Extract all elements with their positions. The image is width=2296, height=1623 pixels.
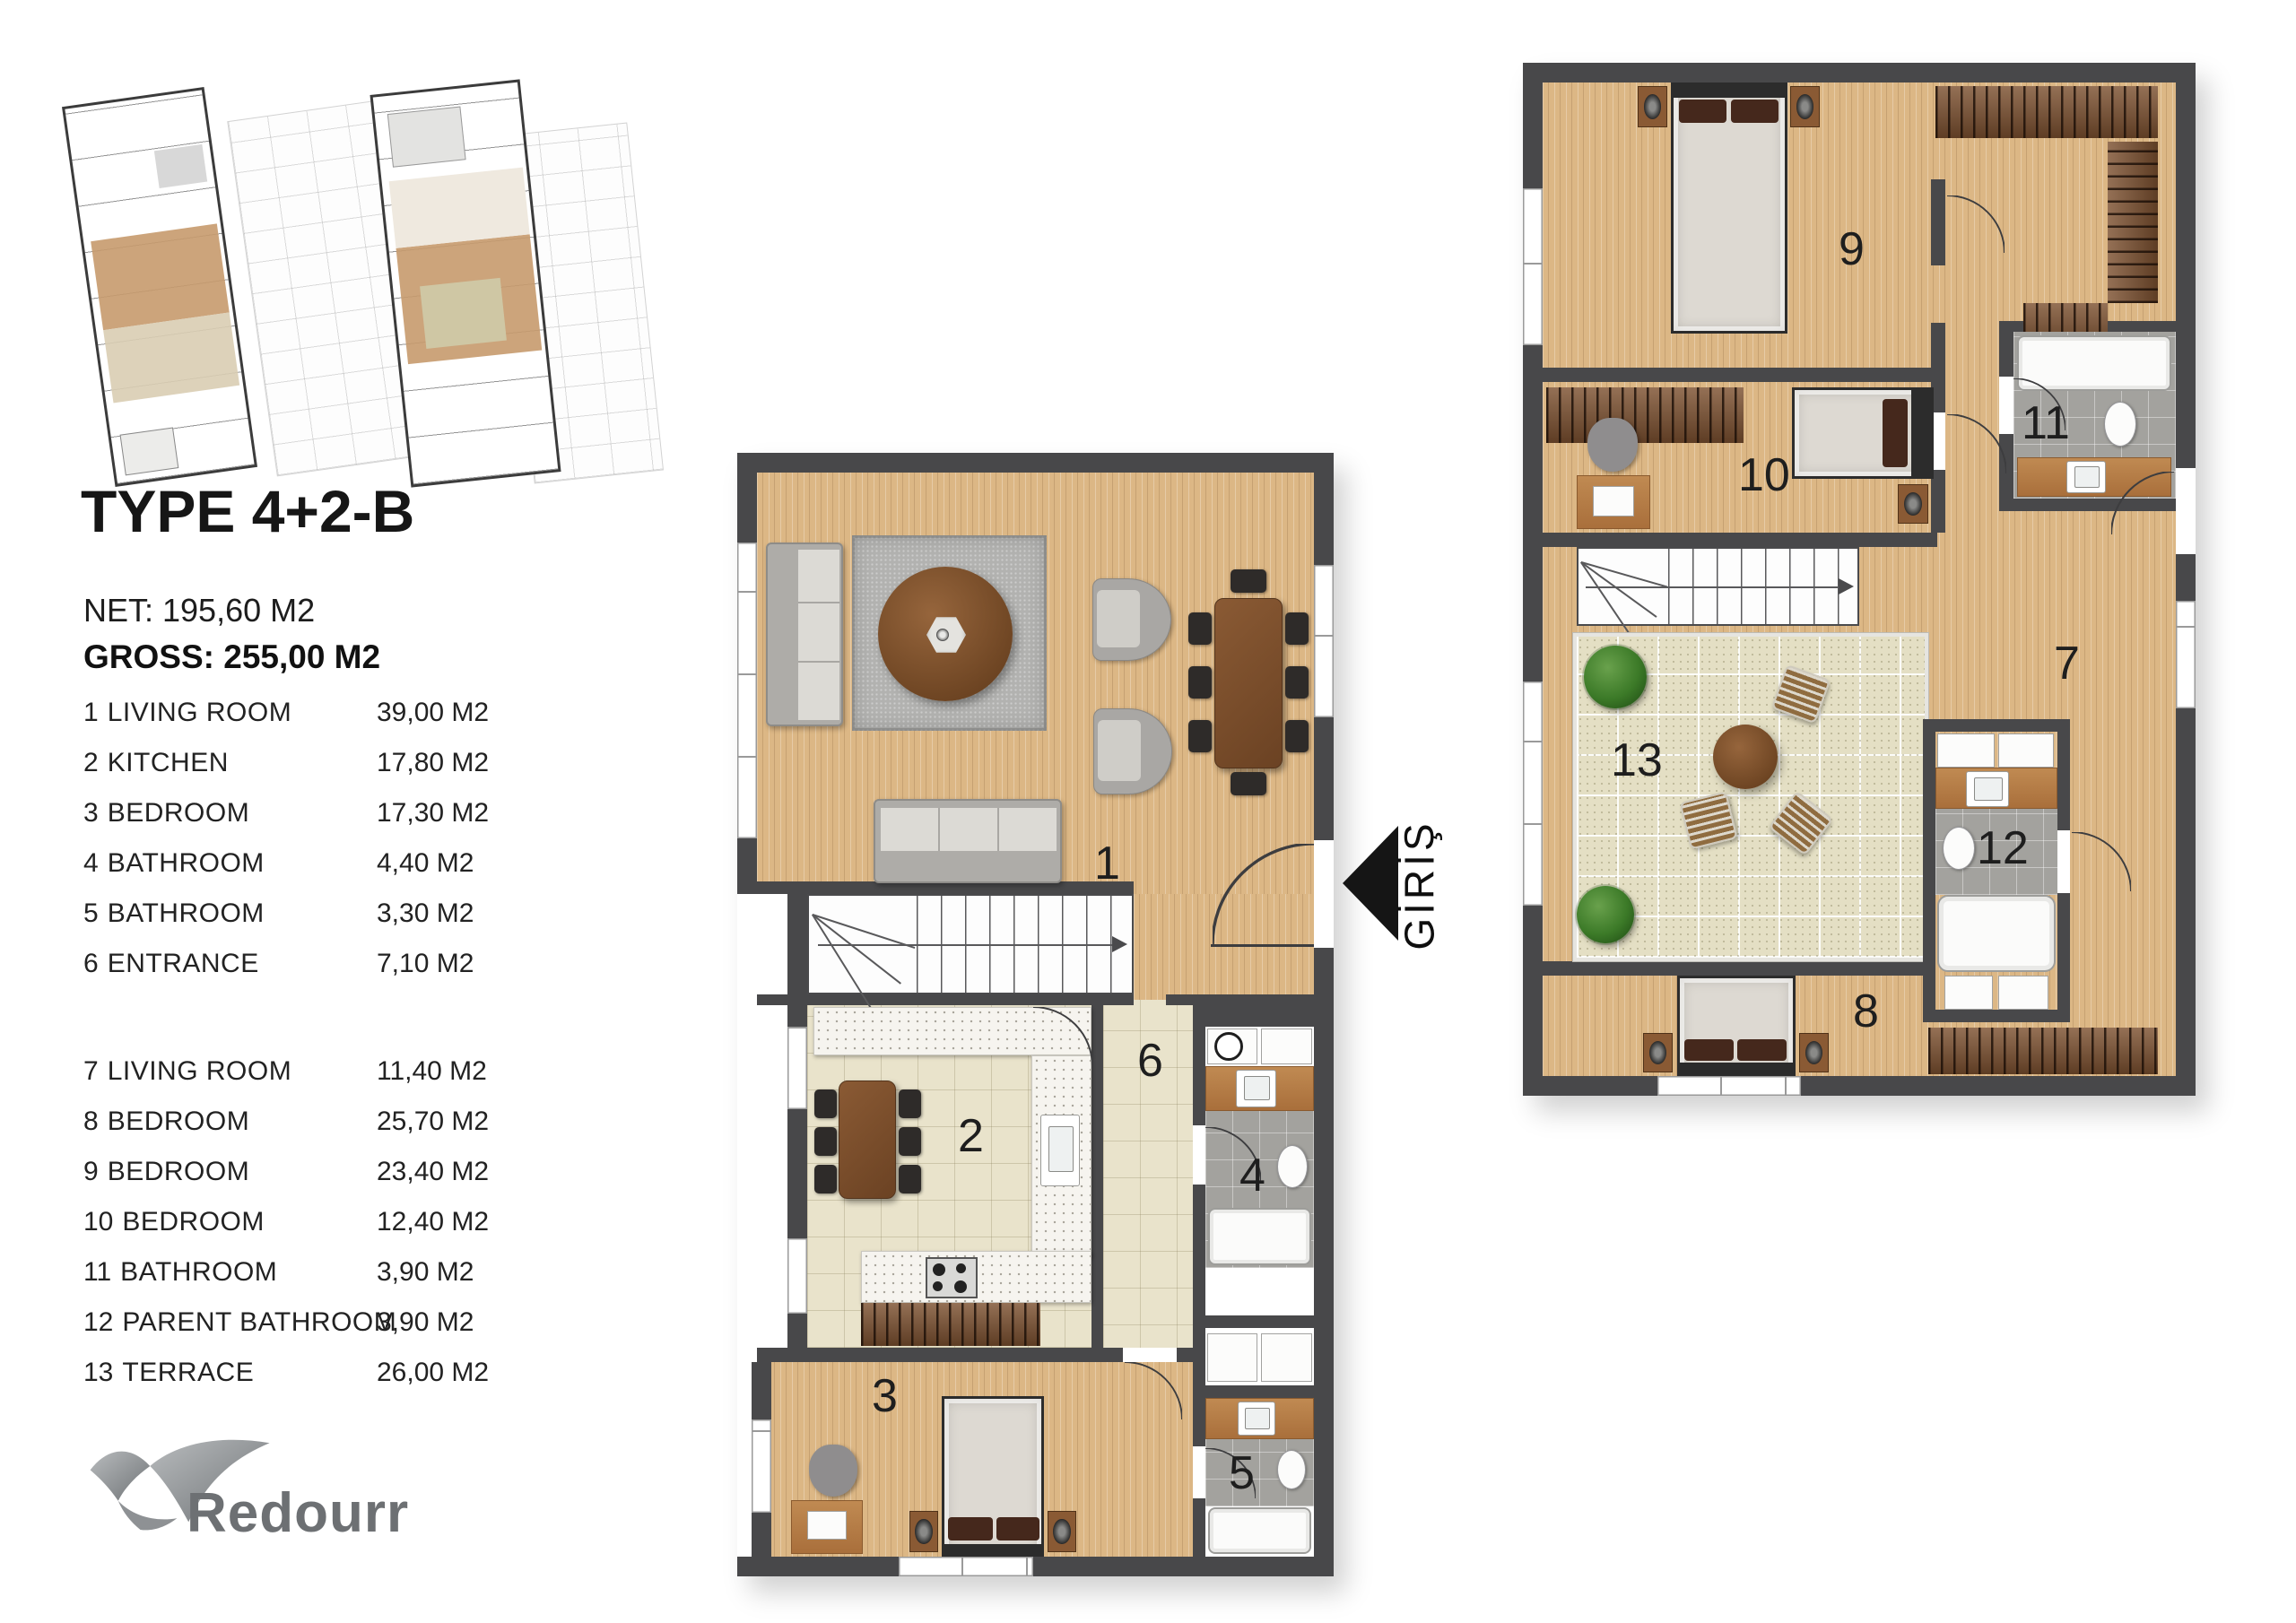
room-label-9: 9	[1839, 222, 1865, 276]
nightstand	[1643, 1033, 1673, 1072]
room-area: 7,10 M2	[377, 949, 474, 979]
door-opening	[2176, 468, 2196, 554]
pillow	[996, 1517, 1039, 1541]
door-arc	[1033, 1007, 1092, 1066]
thumbnail-terrace-block	[420, 278, 507, 349]
nightstand	[1898, 484, 1928, 524]
stair-steps	[813, 914, 916, 949]
page-title: TYPE 4+2-B	[81, 477, 414, 545]
gross-area-label: GROSS: 255,00 M2	[83, 638, 380, 676]
dining-chair	[814, 1165, 837, 1193]
bathroom-sink	[1238, 1402, 1275, 1436]
dining-chair	[1188, 666, 1212, 699]
terrace-table	[1713, 725, 1778, 789]
stair-steps	[1581, 561, 1657, 617]
room-label-8: 8	[1853, 985, 1879, 1038]
double-bed	[1677, 976, 1796, 1076]
room-number: 3	[83, 798, 99, 829]
window	[787, 1027, 807, 1109]
nightstand	[1048, 1511, 1076, 1552]
window	[1314, 565, 1334, 717]
window	[1523, 681, 1543, 906]
room-list-row: 11BATHROOM3,90 M2	[83, 1257, 586, 1307]
net-area-label: NET: 195,60 M2	[83, 592, 315, 629]
thumbnail-plan-1[interactable]	[62, 87, 257, 487]
building-thumbnails	[72, 79, 646, 500]
cabinet	[1937, 733, 1995, 768]
room-area: 3,90 M2	[377, 1257, 474, 1288]
dining-chair	[1188, 720, 1212, 752]
dining-chair	[1285, 720, 1309, 752]
room-number: 2	[83, 748, 99, 778]
dining-chair	[814, 1127, 837, 1156]
room-area: 25,70 M2	[377, 1107, 489, 1137]
stairs	[1577, 547, 1859, 626]
room-list-floor2: 7LIVING ROOM11,40 M2 8BEDROOM25,70 M2 9B…	[83, 1056, 586, 1408]
window	[2176, 601, 2196, 708]
room-number: 1	[83, 698, 99, 728]
laptop	[807, 1511, 847, 1540]
cabinet	[1261, 1333, 1312, 1382]
dining-chair	[899, 1165, 921, 1193]
cabinet	[1207, 1333, 1257, 1382]
room-label-2: 2	[958, 1109, 984, 1163]
stove-burner	[954, 1280, 967, 1293]
nightstand	[1638, 86, 1667, 127]
floorplan-lower: 1 2 3 4 5 6	[737, 453, 1334, 1576]
cabinet	[1261, 1028, 1312, 1064]
door-opening	[2057, 830, 2070, 893]
bathroom-sink	[1236, 1070, 1276, 1107]
wall	[1205, 1000, 1314, 1027]
sofa-cushions	[798, 550, 839, 720]
room-area: 26,00 M2	[377, 1358, 489, 1388]
room-label-10: 10	[1738, 448, 1790, 502]
room-name: BEDROOM	[108, 798, 250, 829]
toilet	[1277, 1450, 1306, 1489]
window	[737, 542, 757, 838]
double-bed	[1671, 82, 1787, 334]
room-number: 10	[83, 1207, 113, 1237]
room-label-7: 7	[2054, 637, 2080, 690]
wall	[757, 881, 1134, 894]
brand-name: Redourr	[187, 1481, 409, 1545]
nightstand	[1790, 86, 1820, 127]
door-opening	[1123, 1348, 1177, 1362]
room-number: 5	[83, 898, 99, 929]
room-number: 9	[83, 1157, 99, 1187]
door-arc	[1947, 414, 2006, 473]
pillow	[1679, 100, 1726, 123]
room-list-row: 6ENTRANCE7,10 M2	[83, 949, 586, 999]
cabinet	[1998, 976, 2048, 1010]
room-list-row: 7LIVING ROOM11,40 M2	[83, 1056, 586, 1107]
dining-chair	[1231, 772, 1266, 795]
room-area: 3,30 M2	[377, 898, 474, 929]
dining-chair	[1188, 612, 1212, 645]
room-name: BEDROOM	[108, 1107, 250, 1137]
stair-steps	[813, 914, 901, 984]
wardrobe	[2108, 142, 2158, 303]
room-name: LIVING ROOM	[108, 698, 292, 728]
room-label-1: 1	[1094, 837, 1120, 890]
wall	[1091, 994, 1103, 1358]
single-bed	[1792, 387, 1934, 479]
room-area: 17,30 M2	[377, 798, 489, 829]
room-list-row: 8BEDROOM25,70 M2	[83, 1107, 586, 1157]
building-setback	[737, 1362, 752, 1576]
stove-burner	[956, 1263, 966, 1273]
room-name: PARENT BATHROOM	[122, 1307, 396, 1338]
building-setback	[737, 894, 787, 1362]
dining-table	[1214, 598, 1283, 768]
entrance-door-opening	[1314, 840, 1334, 948]
door-leaf	[1211, 944, 1314, 947]
stair-handrail	[818, 944, 1114, 946]
room-label-12: 12	[1977, 821, 2029, 875]
wall	[1543, 368, 1937, 382]
sofa	[766, 542, 843, 726]
room-name: TERRACE	[122, 1358, 254, 1388]
room-list-row: 13TERRACE26,00 M2	[83, 1358, 586, 1408]
pillow	[1737, 1039, 1787, 1061]
room-number: 7	[83, 1056, 99, 1087]
door-arc	[2072, 832, 2131, 891]
floorplan-sheet: TYPE 4+2-B NET: 195,60 M2 GROSS: 255,00 …	[0, 0, 2296, 1623]
wall	[1543, 533, 1937, 547]
plant	[1584, 646, 1647, 708]
room-area: 23,40 M2	[377, 1157, 489, 1187]
wall	[1923, 726, 1935, 1022]
door-arc	[1947, 195, 2005, 253]
window	[1523, 188, 1543, 345]
kitchen-sink	[1040, 1115, 1080, 1186]
dining-chair	[1285, 612, 1309, 645]
wall	[737, 1557, 1334, 1576]
thumbnail-room-block	[389, 168, 530, 248]
room-list-row: 2KITCHEN17,80 M2	[83, 748, 586, 798]
thumbnail-room-block	[120, 427, 179, 475]
nightstand	[1799, 1033, 1829, 1072]
toilet	[2104, 402, 2136, 447]
headboard	[1674, 85, 1785, 98]
loveseat-cushions	[881, 808, 1057, 851]
wall	[757, 1348, 1103, 1362]
stove-burner	[933, 1263, 945, 1276]
room-list-row: 3BEDROOM17,30 M2	[83, 798, 586, 848]
room-label-5: 5	[1229, 1446, 1255, 1500]
room-number: 8	[83, 1107, 99, 1137]
dining-chair	[1231, 569, 1266, 593]
kitchen-table	[839, 1081, 896, 1199]
wall	[1205, 1385, 1314, 1398]
tray-cup	[936, 629, 949, 641]
wall	[1523, 63, 2196, 82]
room-number: 6	[83, 949, 99, 979]
entrance-label-text: GİRİŞ	[1396, 820, 1444, 950]
stove	[926, 1257, 978, 1298]
room-label-4: 4	[1239, 1149, 1265, 1202]
dining-chair	[1285, 666, 1309, 699]
room-number: 11	[83, 1257, 111, 1288]
wall	[1931, 179, 1945, 265]
wall	[1923, 1010, 2070, 1022]
desk-chair	[809, 1445, 857, 1497]
pillow	[1883, 399, 1908, 467]
wardrobe	[1935, 86, 2158, 138]
wardrobe	[1546, 387, 1744, 443]
room-name: BATHROOM	[120, 1257, 277, 1288]
room-name: BEDROOM	[108, 1157, 250, 1187]
room-label-6: 6	[1137, 1034, 1163, 1088]
thumbnail-room-block	[387, 107, 466, 168]
room-name: BATHROOM	[108, 848, 265, 879]
wall	[757, 994, 1134, 1005]
dining-chair	[899, 1089, 921, 1118]
door-arc	[1213, 844, 1314, 944]
wall	[1923, 719, 2070, 732]
shower-tray	[1208, 1507, 1311, 1554]
room-name: BATHROOM	[108, 898, 265, 929]
stair-direction-arrow	[1839, 578, 1854, 595]
room-area: 12,40 M2	[377, 1207, 489, 1237]
dining-chair	[899, 1127, 921, 1156]
room-label-13: 13	[1611, 733, 1663, 787]
floorplan-upper: 7 8 9 10 11 12 13	[1523, 63, 2196, 1096]
bathroom-sink	[2066, 461, 2106, 493]
room-list-row: 12PARENT BATHROOM3,90 M2	[83, 1307, 586, 1358]
shower-tray	[1208, 1208, 1311, 1265]
window	[1657, 1076, 1801, 1096]
wall	[1523, 1076, 2196, 1096]
wall	[2176, 63, 2196, 1096]
pillow	[948, 1517, 993, 1541]
wall	[737, 453, 1334, 473]
room-list-row: 5BATHROOM3,30 M2	[83, 898, 586, 949]
nightstand	[909, 1511, 938, 1552]
desk-chair	[1587, 418, 1638, 472]
room-area: 39,00 M2	[377, 698, 489, 728]
door-opening	[1193, 1446, 1205, 1498]
room-name: BEDROOM	[122, 1207, 265, 1237]
window	[787, 1238, 807, 1314]
pillow	[1684, 1039, 1734, 1061]
room-list-row: 10BEDROOM12,40 M2	[83, 1207, 586, 1257]
dining-chair	[814, 1089, 837, 1118]
stove-burner	[933, 1281, 943, 1291]
room-label-11: 11	[2022, 396, 2070, 450]
room-list-row: 4BATHROOM4,40 M2	[83, 848, 586, 898]
headboard	[1680, 1063, 1793, 1073]
toilet	[1277, 1145, 1308, 1188]
door-opening	[1193, 1125, 1205, 1185]
thumbnail-highlight-area	[91, 223, 230, 330]
room-list-row: 9BEDROOM23,40 M2	[83, 1157, 586, 1207]
door-arc	[1125, 1362, 1182, 1419]
room-name: KITCHEN	[108, 748, 229, 778]
washer-drum	[1214, 1032, 1243, 1061]
room-area: 17,80 M2	[377, 748, 489, 778]
cabinet	[1998, 733, 2054, 768]
laptop	[1593, 486, 1634, 516]
room-number: 12	[83, 1307, 113, 1338]
toilet	[1943, 827, 1975, 870]
room-number: 13	[83, 1358, 113, 1388]
stair-handrail	[1586, 586, 1846, 588]
room-label-3: 3	[872, 1369, 898, 1423]
plant	[1577, 886, 1634, 943]
double-bed	[942, 1396, 1044, 1557]
window	[752, 1419, 771, 1513]
room-area: 3,90 M2	[377, 1307, 474, 1338]
entrance-label: GİRİŞ	[1388, 773, 1451, 997]
wardrobe	[1928, 1028, 2158, 1074]
door-arc	[2111, 472, 2174, 534]
bathtub	[1937, 895, 2056, 972]
loveseat	[874, 799, 1062, 883]
stairs	[807, 894, 1134, 994]
room-area: 4,40 M2	[377, 848, 474, 879]
room-area: 11,40 M2	[377, 1056, 487, 1087]
wall	[1543, 961, 1923, 976]
headboard	[1911, 390, 1931, 476]
thumbnail-room-block	[154, 144, 207, 188]
room-list-floor1: 1LIVING ROOM39,00 M2 2KITCHEN17,80 M2 3B…	[83, 698, 586, 999]
room-name: ENTRANCE	[108, 949, 259, 979]
stair-direction-arrow	[1112, 936, 1127, 952]
room-number: 4	[83, 848, 99, 879]
headboard	[944, 1544, 1041, 1555]
wall	[1205, 1315, 1314, 1328]
window	[899, 1557, 1033, 1576]
room-list-row: 1LIVING ROOM39,00 M2	[83, 698, 586, 748]
room-name: LIVING ROOM	[108, 1056, 292, 1087]
kitchen-cabinet	[861, 1303, 1040, 1346]
pillow	[1731, 100, 1779, 123]
bathroom-sink	[1966, 771, 2009, 807]
cabinet	[1944, 976, 1993, 1010]
